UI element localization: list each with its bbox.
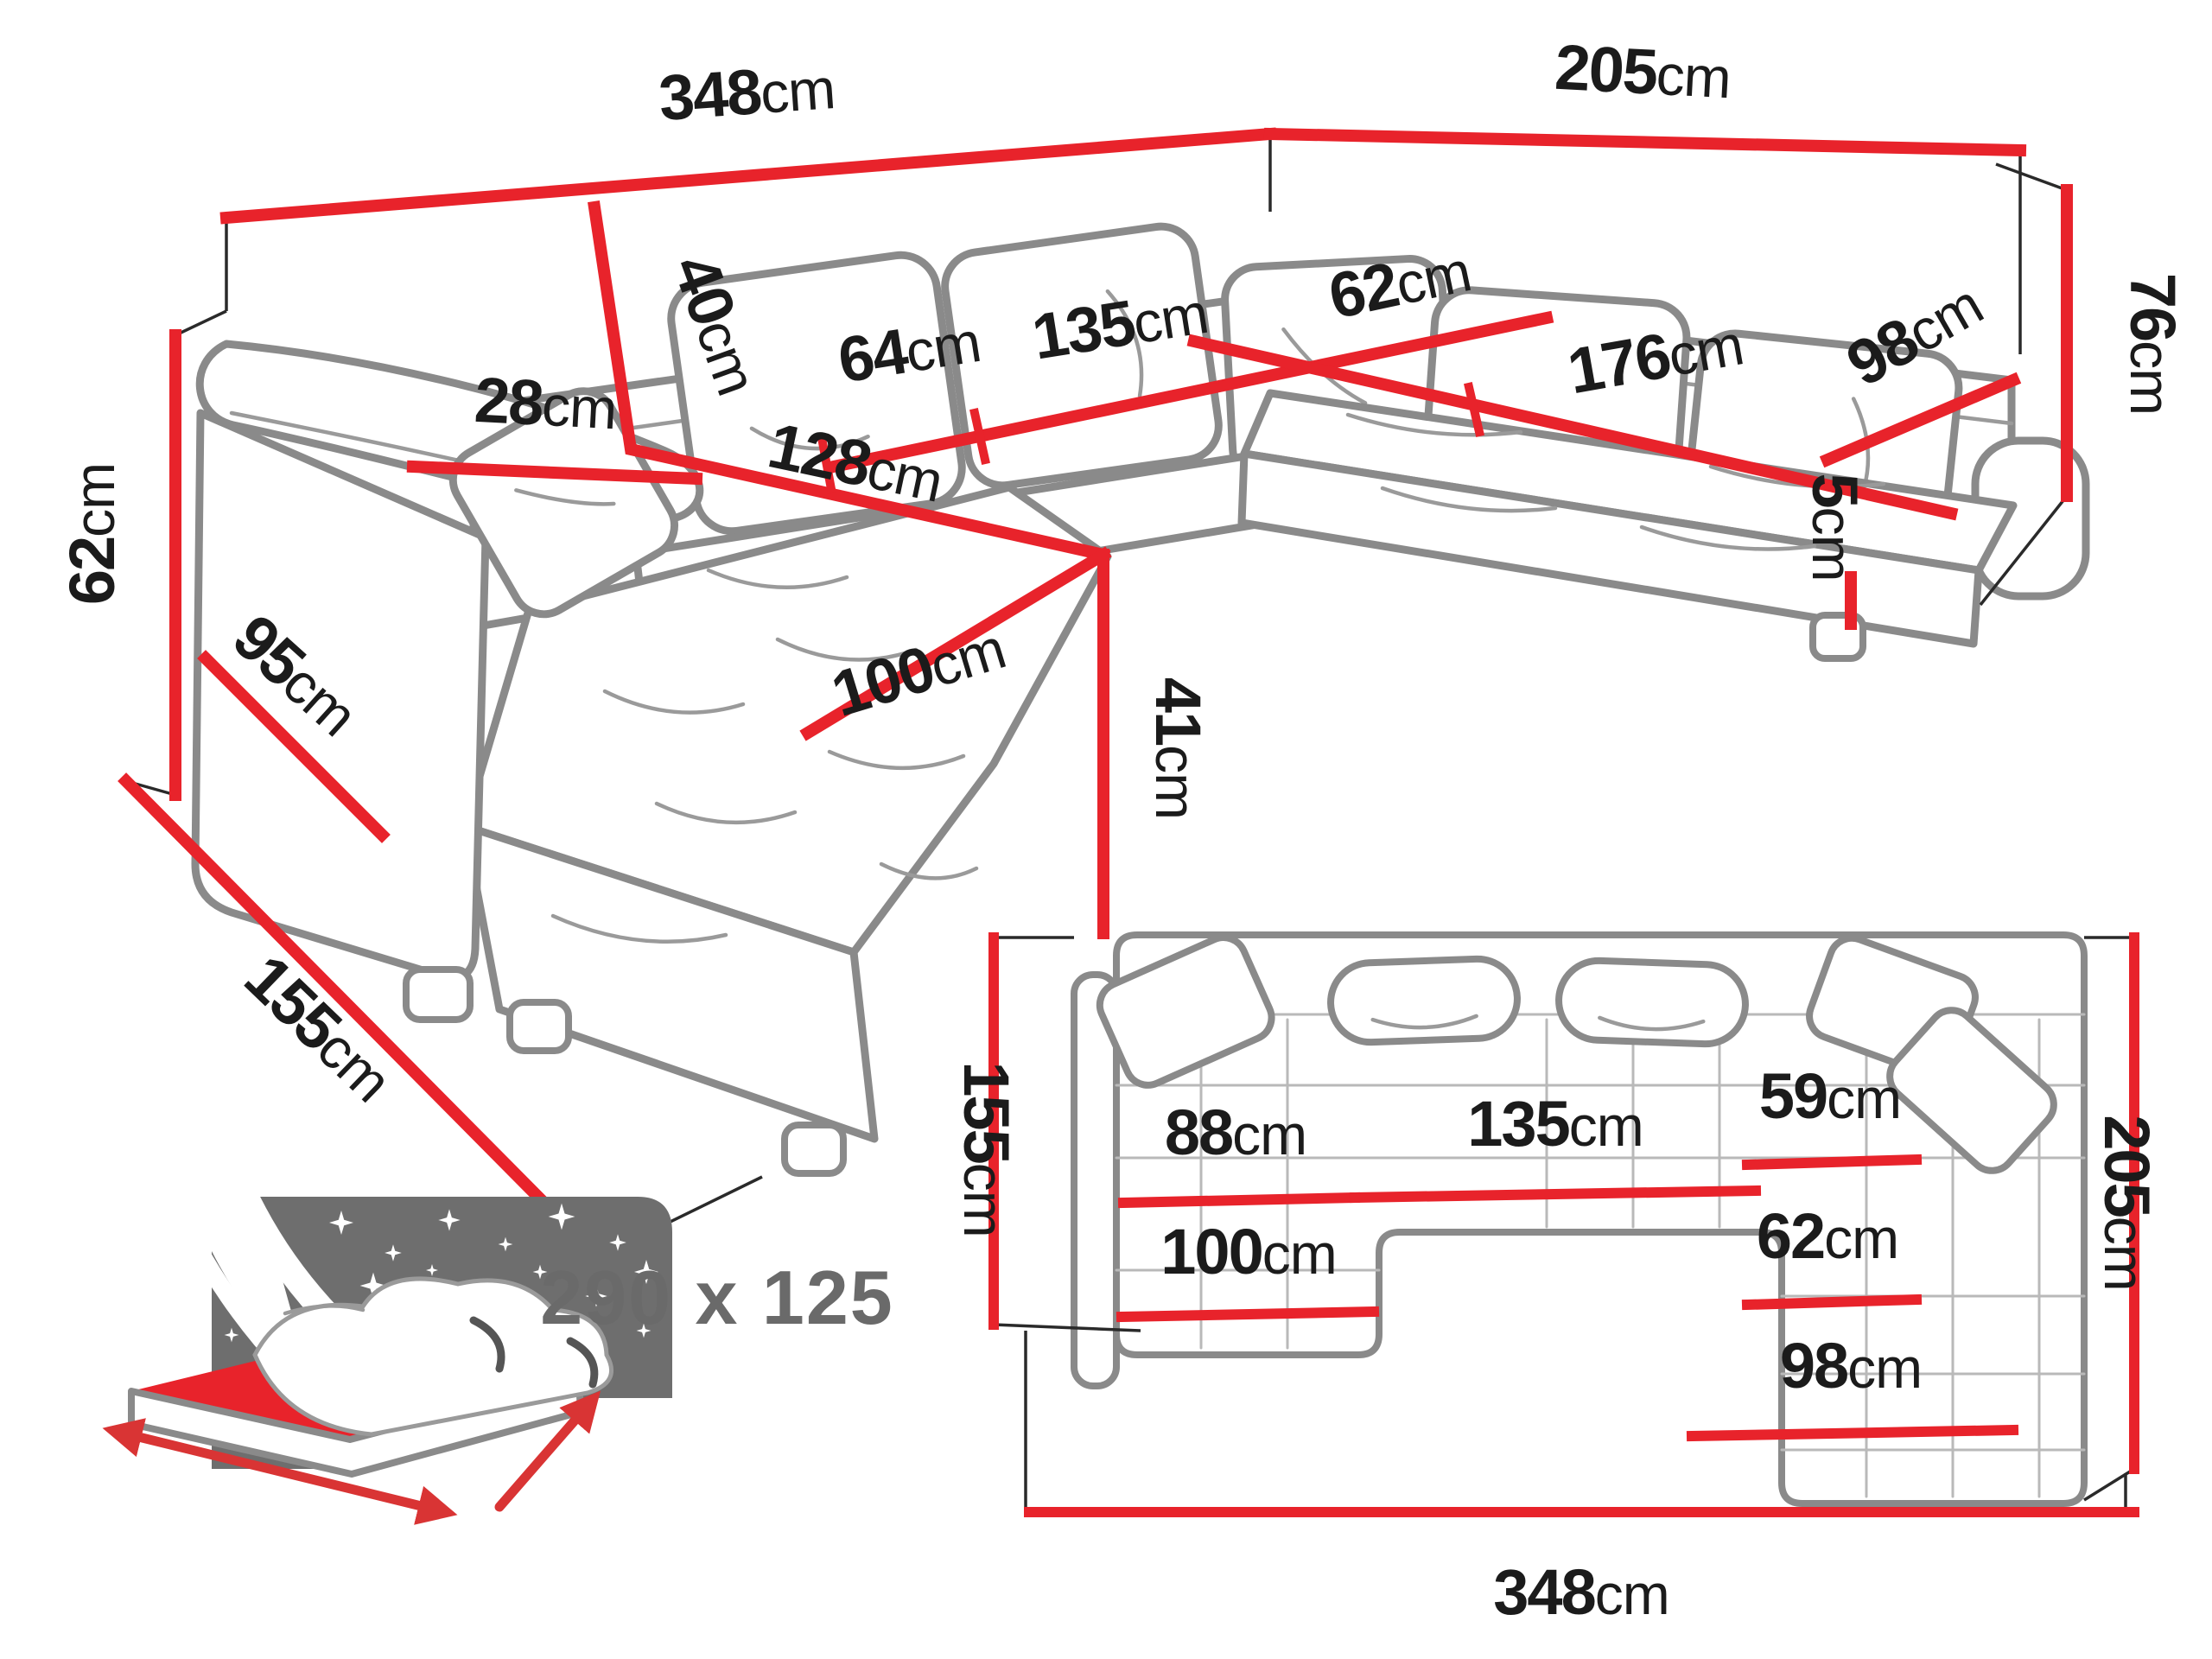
top-dim-135 bbox=[1355, 1191, 1756, 1198]
top-label-chaise-width: 100cm bbox=[1160, 1216, 1336, 1287]
chaise-foot bbox=[510, 1002, 569, 1051]
chaise-foot bbox=[785, 1125, 843, 1173]
armrest-foot bbox=[406, 969, 470, 1020]
top-dim-100 bbox=[1122, 1312, 1374, 1317]
label-leg-height: 5cm bbox=[1799, 473, 1871, 581]
label-seat-height: 41cm bbox=[1142, 677, 1214, 819]
label-right-back-width: 205cm bbox=[1554, 31, 1733, 112]
top-pillow bbox=[1329, 957, 1518, 1043]
top-dim-88 bbox=[1123, 1198, 1355, 1203]
top-label-chaise-seat-width: 88cm bbox=[1165, 1096, 1306, 1168]
label-arm-height2: 62cm bbox=[56, 463, 128, 605]
top-label-right-seat-width: 59cm bbox=[1759, 1060, 1901, 1132]
sleeping-area-label: 290 x 125 bbox=[540, 1255, 894, 1340]
label-total-height: 76cm bbox=[2117, 273, 2189, 415]
label-back-width: 348cm bbox=[657, 50, 837, 134]
label-chaise-total-depth: 155cm bbox=[232, 941, 408, 1115]
top-dim-62 bbox=[1747, 1300, 1916, 1305]
dim-line-348 bbox=[226, 134, 1270, 218]
dim-line-205 bbox=[1270, 134, 2020, 150]
top-label-depth-left: 155cm bbox=[950, 1061, 1022, 1236]
top-label-depth-right: 205cm bbox=[2091, 1115, 2163, 1290]
top-label-mid-seat-width: 135cm bbox=[1467, 1088, 1643, 1160]
top-label-total-width: 348cm bbox=[1493, 1556, 1669, 1628]
label-arm-top-depth: 28cm bbox=[473, 364, 618, 442]
top-view: 155cm 88cm 135cm 59cm 62cm 100cm 98cm 20… bbox=[950, 931, 2163, 1628]
furniture-dimension-diagram: 348cm 205cm 76cm 62cm 28cm 95cm 40cm 64c… bbox=[0, 0, 2212, 1659]
diagram-canvas: 348cm 205cm 76cm 62cm 28cm 95cm 40cm 64c… bbox=[0, 0, 2212, 1659]
top-dim-59 bbox=[1747, 1160, 1916, 1165]
top-label-right-section-bottom: 98cm bbox=[1780, 1330, 1922, 1402]
top-label-right-section-width: 62cm bbox=[1757, 1200, 1898, 1272]
top-dim-98 bbox=[1692, 1430, 2013, 1436]
top-pillow bbox=[1557, 959, 1746, 1045]
bed-icon: 290 x 125 bbox=[114, 1192, 894, 1512]
